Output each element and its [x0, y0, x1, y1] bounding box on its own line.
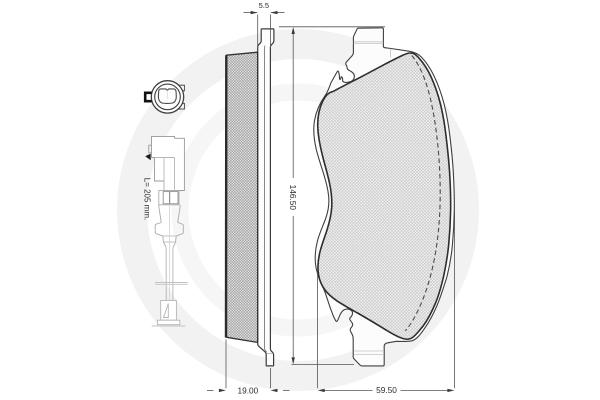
svg-text:L= 205 mm.: L= 205 mm. [143, 178, 152, 220]
svg-text:19.00: 19.00 [238, 385, 259, 395]
svg-text:5.5: 5.5 [259, 1, 269, 10]
svg-text:146.50: 146.50 [288, 185, 298, 211]
svg-text:59.50: 59.50 [376, 385, 397, 395]
